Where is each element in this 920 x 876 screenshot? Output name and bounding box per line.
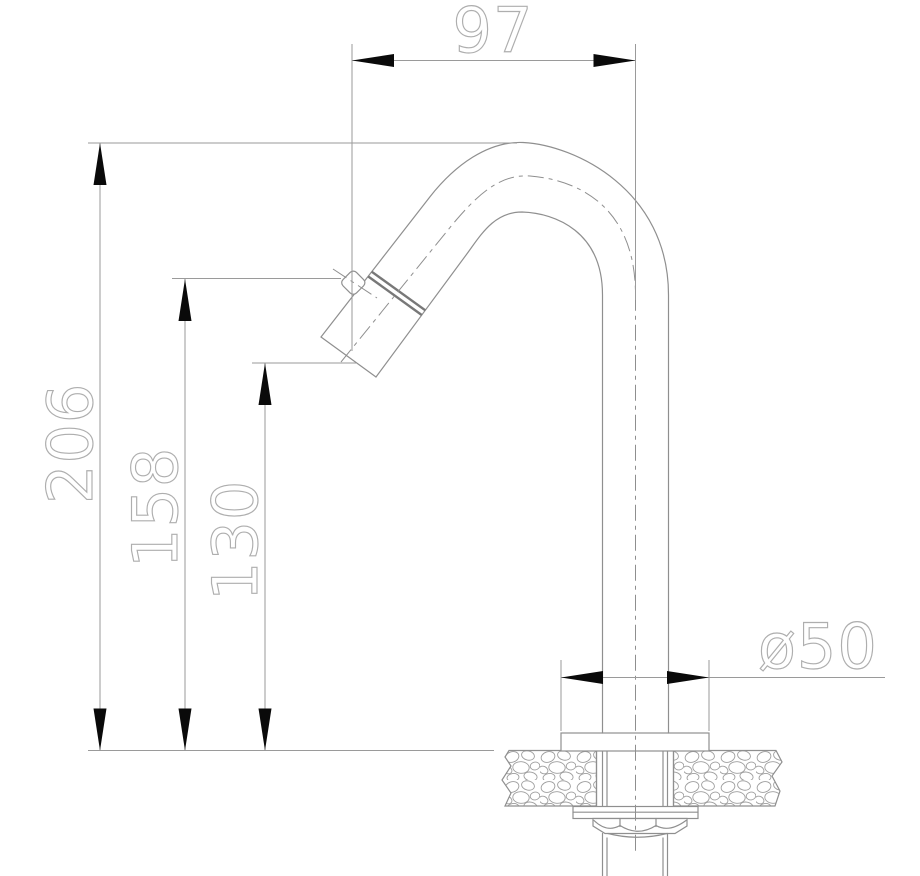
faucet-drawing: 97 206 158 130 ø50 [0, 0, 920, 876]
arrowhead-up [259, 363, 272, 405]
tube-inner-edge [376, 212, 603, 733]
spout-joint-line-2 [368, 276, 422, 315]
dimension-reach: 97 [352, 0, 636, 351]
dimension-base-diameter: ø50 [561, 610, 885, 731]
dimension-value-158: 158 [119, 447, 192, 568]
countertop-section [502, 751, 782, 807]
tube-outer-edge [321, 142, 669, 733]
hex-nut [593, 819, 687, 838]
arrowhead-left [352, 54, 394, 67]
arrowhead-left [561, 671, 603, 684]
arrowhead-right [594, 54, 636, 67]
arrowhead-down [94, 709, 107, 751]
arrowhead-down [179, 709, 192, 751]
arrowhead-down [259, 709, 272, 751]
dimension-value-130: 130 [199, 480, 272, 601]
countertop-slab-left [502, 751, 597, 807]
dimension-outlet-height: 130 [199, 363, 356, 751]
countertop-slab-right [674, 751, 783, 807]
dimension-value-97: 97 [453, 0, 534, 67]
arrowhead-up [179, 279, 192, 321]
dimension-value-dia50: ø50 [758, 610, 878, 683]
technical-drawing-canvas: 97 206 158 130 ø50 [0, 0, 920, 876]
arrowhead-right [667, 671, 709, 684]
faucet-body [321, 142, 709, 853]
arrowhead-up [94, 143, 107, 185]
spout-end-face [321, 337, 376, 377]
dimension-value-206: 206 [34, 383, 107, 504]
